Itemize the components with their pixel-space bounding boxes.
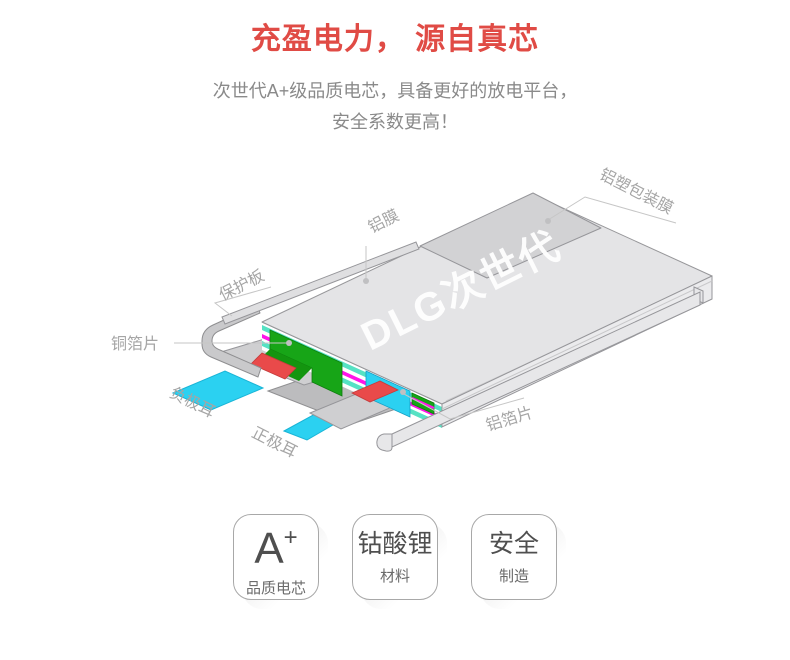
badge-material-card: 钴酸锂 材料 xyxy=(352,514,438,600)
badge-safety-card: 安全 制造 xyxy=(471,514,557,600)
dot-aluminum-film xyxy=(363,278,369,284)
label-protection-board: 保护板 xyxy=(216,267,267,305)
dot-packaging-film xyxy=(545,218,551,224)
badge-quality-superscript: + xyxy=(284,524,298,551)
badge-safety-subtitle: 制造 xyxy=(499,565,529,586)
subtitle-line2: 安全系数更高！ xyxy=(332,112,458,132)
badge-quality-card: A+ 品质电芯 xyxy=(233,514,319,600)
badge-quality-title-text: A xyxy=(254,524,283,573)
label-aluminum-film: 铝膜 xyxy=(365,206,402,237)
feature-badges: A+ 品质电芯 钴酸锂 材料 安全 制造 xyxy=(0,514,790,600)
badge-safety-title: 安全 xyxy=(489,529,539,559)
header: 充盈电力， 源自真芯 次世代A+级品质电芯，具备更好的放电平台， 安全系数更高！ xyxy=(0,0,790,138)
badge-material: 钴酸锂 材料 xyxy=(352,514,438,600)
badge-material-title: 钴酸锂 xyxy=(357,529,432,559)
subtitle-line1: 次世代A+级品质电芯，具备更好的放电平台， xyxy=(213,81,578,101)
label-packaging-film: 铝塑包装膜 xyxy=(597,165,676,217)
label-copper-foil: 铜箔片 xyxy=(111,335,159,353)
badge-safety: 安全 制造 xyxy=(471,514,557,600)
badge-quality-title: A+ xyxy=(254,516,297,571)
page-title: 充盈电力， 源自真芯 xyxy=(0,14,790,58)
badge-material-subtitle: 材料 xyxy=(380,565,410,586)
badge-quality-cell: A+ 品质电芯 xyxy=(233,514,319,600)
dot-copper-foil xyxy=(286,340,292,346)
seal-flange-left-cap xyxy=(377,434,392,451)
subtitle: 次世代A+级品质电芯，具备更好的放电平台， 安全系数更高！ xyxy=(0,76,790,138)
dot-aluminum-foil xyxy=(400,389,406,395)
badge-quality-subtitle: 品质电芯 xyxy=(246,577,306,598)
label-aluminum-foil: 铝箔片 xyxy=(484,404,535,435)
battery-promo-section: 充盈电力， 源自真芯 次世代A+级品质电芯，具备更好的放电平台， 安全系数更高！ xyxy=(0,0,790,660)
